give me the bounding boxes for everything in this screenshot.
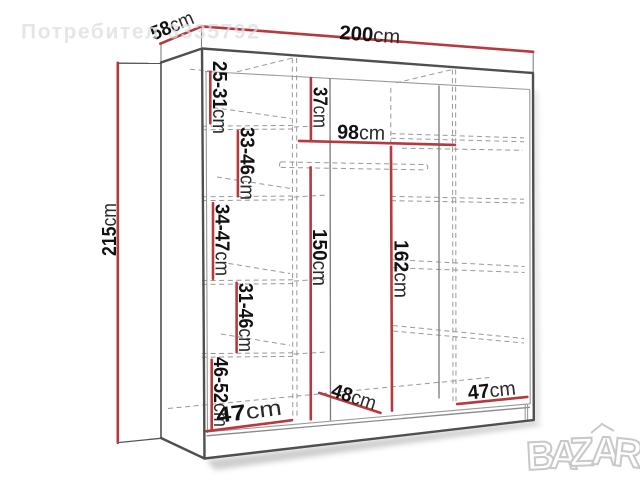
svg-text:215cm: 215cm <box>99 203 121 256</box>
svg-text:98cm: 98cm <box>337 122 386 145</box>
svg-text:162cm: 162cm <box>390 240 412 298</box>
svg-text:31-46cm: 31-46cm <box>234 283 256 352</box>
svg-text:R: R <box>611 430 640 477</box>
svg-text:Потребител 3335792: Потребител 3335792 <box>21 21 261 44</box>
svg-text:33-46cm: 33-46cm <box>235 127 257 200</box>
svg-text:200cm: 200cm <box>339 22 401 48</box>
svg-text:37cm: 37cm <box>308 87 330 128</box>
svg-text:34-47cm: 34-47cm <box>210 204 232 276</box>
svg-text:150cm: 150cm <box>308 229 330 286</box>
svg-text:25-31cm: 25-31cm <box>208 61 230 134</box>
